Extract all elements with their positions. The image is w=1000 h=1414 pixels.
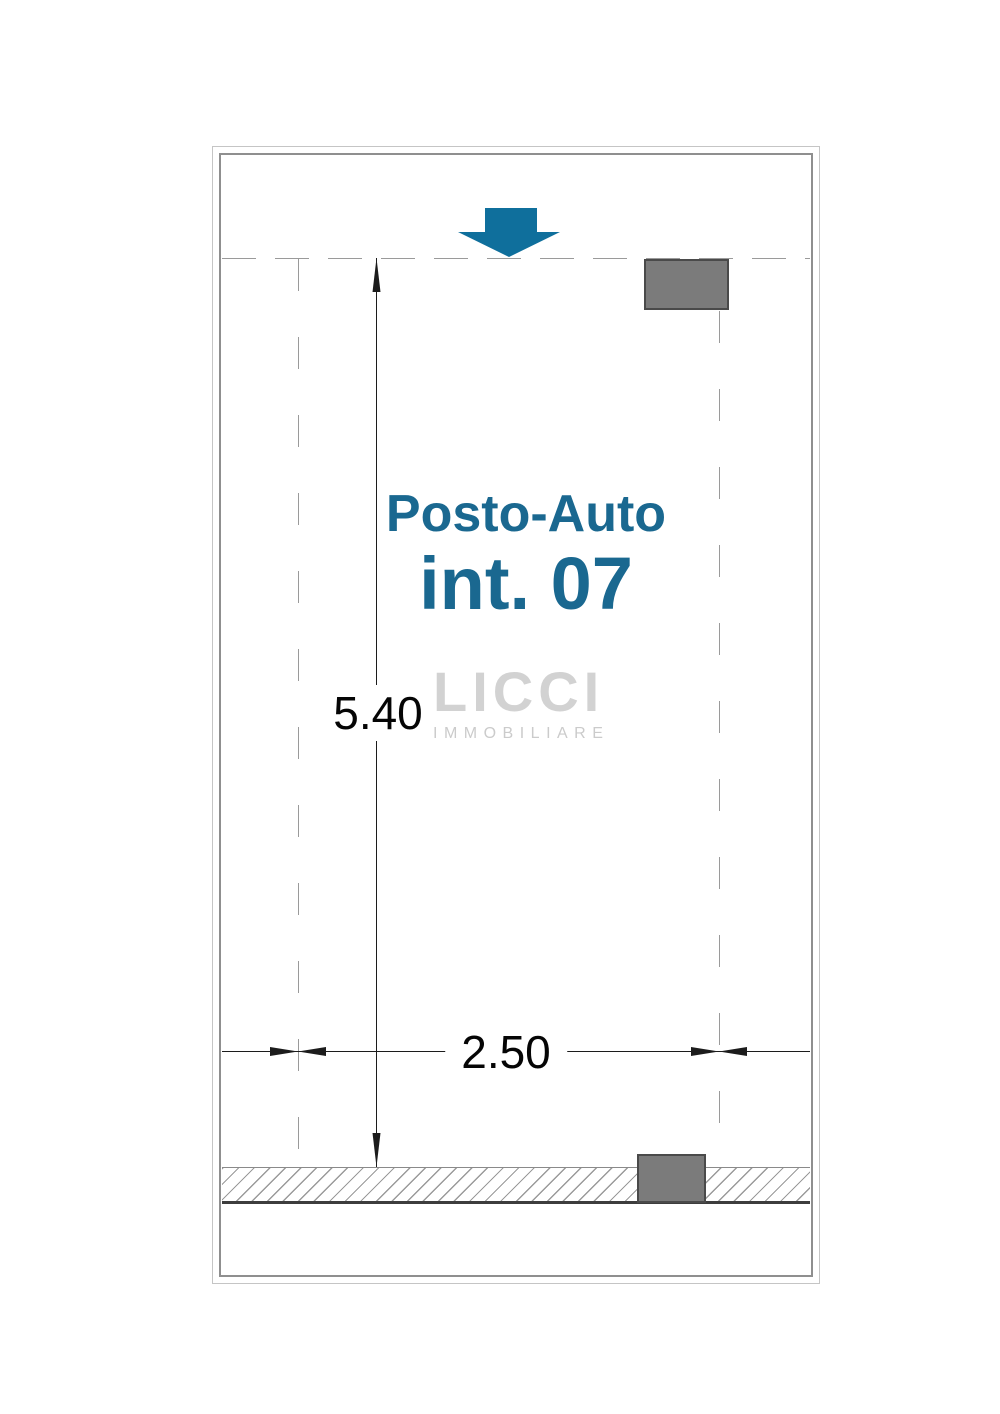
dimension-width-label: 2.50: [445, 1027, 567, 1077]
agency-tagline-label: IMMOBILIARE: [433, 726, 609, 742]
column-top: [644, 259, 729, 310]
agency-watermark: LICCI IMMOBILIARE: [433, 664, 609, 742]
parking-boundary-left: [298, 259, 299, 1168]
dimension-arrowhead-pair-right-icon: [691, 1045, 747, 1058]
column-bottom: [637, 1154, 706, 1203]
unit-type-label: Posto-Auto: [386, 488, 666, 540]
parking-boundary-right: [719, 311, 720, 1168]
agency-brand-label: LICCI: [433, 664, 609, 720]
entrance-down-arrow-icon: [458, 208, 560, 257]
hatched-wall-strip: [222, 1167, 810, 1204]
dimension-arrowhead-pair-left-icon: [270, 1045, 326, 1058]
unit-number-label: int. 07: [386, 547, 666, 621]
floorplan-canvas: 5.40 Posto-Auto int. 07 LICCI IMMOBILIAR…: [0, 0, 1000, 1414]
dimension-depth-label: 5.40: [325, 685, 431, 741]
dimension-arrowhead-up-icon: [370, 258, 383, 292]
unit-title: Posto-Auto int. 07: [386, 488, 666, 621]
dimension-arrowhead-down-icon: [370, 1133, 383, 1167]
